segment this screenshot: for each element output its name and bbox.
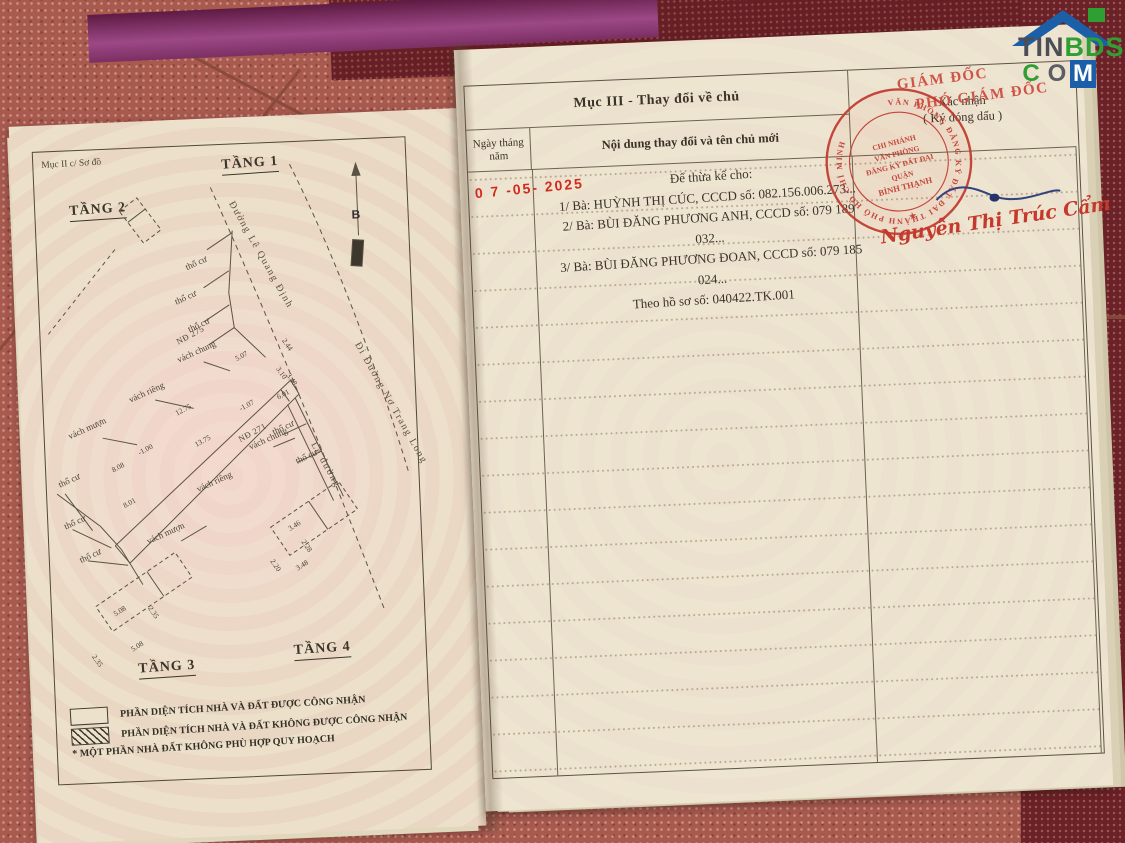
page-site-plan: Mục II c/ Sơ đồ TẦNG 1 TẦNG 2 TẦNG 3 TẦN… bbox=[9, 108, 487, 843]
site-plan-drawing bbox=[33, 137, 431, 784]
logo-line-2: COM bbox=[1018, 60, 1096, 88]
tinbds-logo: TINBDS COM bbox=[1004, 2, 1122, 96]
street-line-no-trang-long bbox=[289, 160, 408, 476]
north-arrow bbox=[356, 167, 359, 235]
north-symbol bbox=[351, 240, 364, 267]
north-arrow-head bbox=[351, 163, 359, 175]
legend-swatch-hatched bbox=[71, 727, 110, 746]
column-divider bbox=[532, 170, 558, 776]
column-header-date: Ngày tháng năm bbox=[466, 128, 532, 173]
logo-line-1: TINBDS bbox=[1018, 32, 1125, 63]
certificate-book: Mục II c/ Sơ đồ TẦNG 1 TẦNG 2 TẦNG 3 TẦN… bbox=[6, 18, 1116, 843]
change-entry: Để thừa kế cho: 1/ Bà: HUỲNH THỊ CÚC, CC… bbox=[551, 157, 869, 320]
site-plan-frame: Mục II c/ Sơ đồ TẦNG 1 TẦNG 2 TẦNG 3 TẦN… bbox=[32, 136, 432, 785]
photo-scene: Mục II c/ Sơ đồ TẦNG 1 TẦNG 2 TẦNG 3 TẦN… bbox=[0, 0, 1125, 843]
legend-swatch-empty bbox=[70, 707, 109, 726]
plan-label: B bbox=[351, 207, 360, 221]
page-owner-changes: Mục III - Thay đổi về chủ Xác nhận ( Ký … bbox=[454, 24, 1113, 812]
